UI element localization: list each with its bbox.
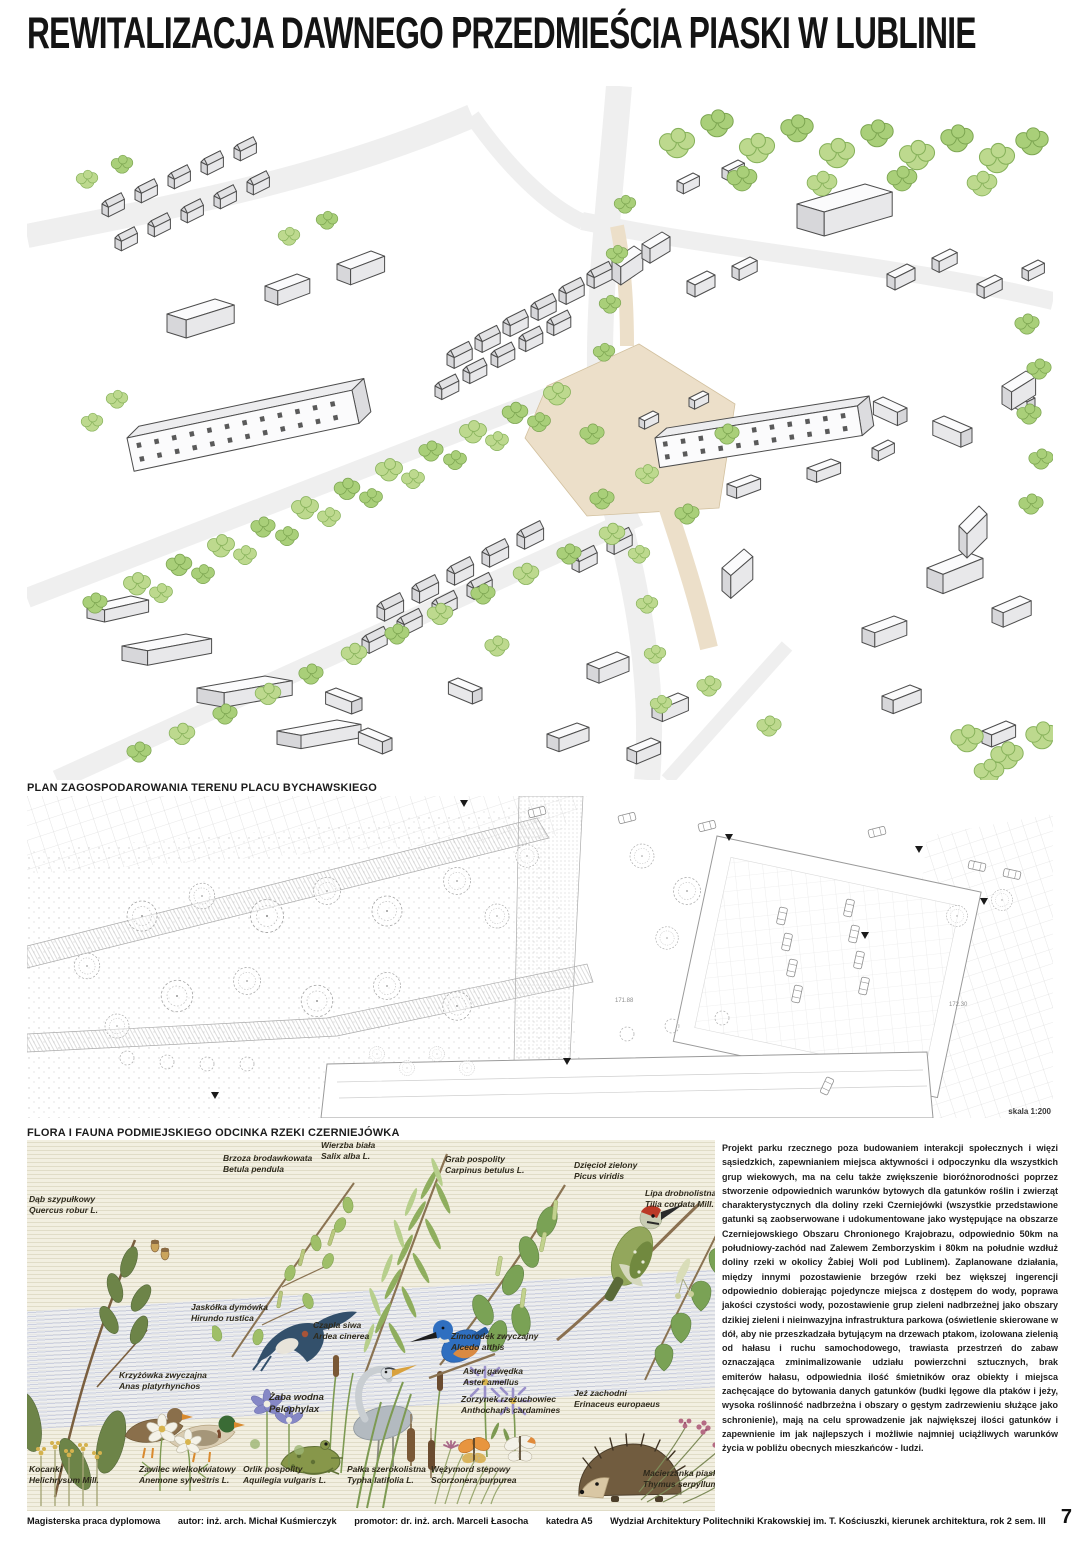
scale-note: skala 1:200 [1008, 1107, 1051, 1116]
page-title-text: REWITALIZACJA DAWNEGO PRZEDMIEŚCIA PIASK… [27, 8, 976, 59]
species-label: Grab pospolityCarpinus betulus L. [445, 1154, 524, 1175]
footer-department: katedra A5 [546, 1516, 593, 1526]
thyme-illustration [633, 1400, 715, 1505]
axonometric-drawing [27, 86, 1053, 780]
species-label: Wężymord stepowyScorzonera purpurea [431, 1464, 517, 1485]
axon-slab-west [125, 378, 373, 471]
species-label: Zorzynek rzeżuchowiecAnthocharis cardami… [461, 1394, 560, 1415]
species-label: Wierzba białaSalix alba L. [321, 1140, 375, 1161]
site-plan: 171.88 172.30 skala 1:200 [27, 796, 1053, 1118]
site-plan-label: PLAN ZAGOSPODAROWANIA TERENU PLACU BYCHA… [27, 782, 377, 794]
page-number: 7 [1061, 1506, 1072, 1529]
flora-fauna-panel: Dąb szypułkowyQuercus robur L. Brzoza br… [27, 1140, 715, 1511]
species-label: Krzyżówka zwyczajnaAnas platyrhynchos [119, 1370, 207, 1391]
footer-author: autor: inż. arch. Michał Kuśmierczyk [178, 1516, 337, 1526]
species-label: Dąb szypułkowyQuercus robur L. [29, 1194, 98, 1215]
site-plan-drawing [27, 796, 1053, 1118]
species-label: Jeż zachodniErinaceus europaeus [574, 1388, 660, 1409]
species-label: Zimorodek zwyczajnyAlcedo atthis [451, 1331, 538, 1352]
species-label: Macierzanka piaskowaThymus serpyllum L. [643, 1468, 715, 1489]
plan-elevation-annotation: 171.88 [615, 998, 633, 1004]
species-label: Zawilec wielkokwiatowyAnemone sylvestris… [139, 1464, 236, 1485]
species-label: Pałka szerokolistnaTypha latifolia L. [347, 1464, 426, 1485]
page-title: REWITALIZACJA DAWNEGO PRZEDMIEŚCIA PIASK… [27, 8, 1057, 52]
linden-illustration [625, 1195, 715, 1385]
species-label: Orlik pospolityAquilegia vulgaris L. [243, 1464, 326, 1485]
species-label: Jaskółka dymówkaHirundo rustica [191, 1302, 268, 1323]
flora-fauna-label: FLORA I FAUNA PODMIEJSKIEGO ODCINKA RZEK… [27, 1127, 400, 1139]
footer-promoter: promotor: dr. inż. arch. Marceli Łasocha [354, 1516, 528, 1526]
species-label: Czapla siwaArdea cinerea [313, 1320, 369, 1341]
species-label: KocankiHelichrysum Mill. [29, 1464, 99, 1485]
species-label: Brzoza brodawkowataBetula pendula [223, 1153, 312, 1174]
footer-thesis-type: Magisterska praca dyplomowa [27, 1516, 160, 1526]
project-description: Projekt parku rzecznego poza budowaniem … [722, 1141, 1058, 1507]
poster-page: REWITALIZACJA DAWNEGO PRZEDMIEŚCIA PIASK… [0, 0, 1080, 1543]
plan-elevation-annotation: 172.30 [949, 1002, 967, 1008]
species-label: Lipa drobnolistnaTilia cordata Mill. [645, 1188, 715, 1209]
species-label: Żaba wodnaPelophylax [269, 1392, 324, 1416]
species-label: Dzięcioł zielonyPicus viridis [574, 1160, 637, 1181]
footer: Magisterska praca dyplomowa autor: inż. … [27, 1516, 1033, 1526]
species-label: Aster gawędkaAster amellus [463, 1366, 523, 1387]
footer-faculty: Wydział Architektury Politechniki Krakow… [610, 1516, 1046, 1526]
